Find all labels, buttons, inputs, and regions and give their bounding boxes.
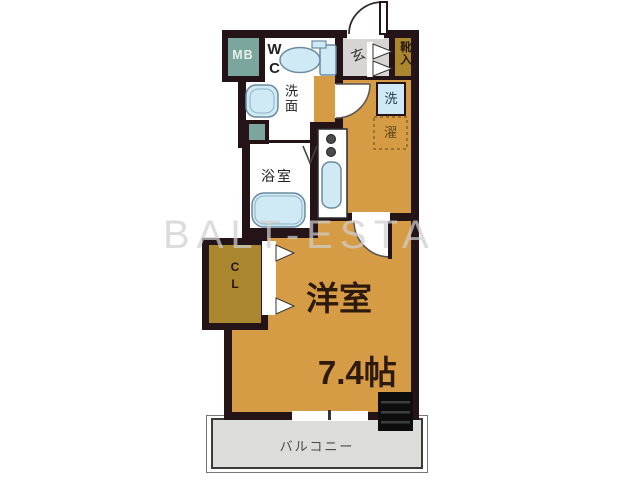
wall-shoe-divider [389,32,395,80]
toilet-bowl [280,48,320,73]
toilet-label: WC [266,41,283,79]
wall-corridor-right-lower [335,118,343,129]
toilet-tank [320,45,336,75]
laundry-label-top: 洗 [377,88,405,107]
washbasin [246,85,278,117]
stove-burner-1 [327,135,336,144]
balcony-window-tick [328,410,331,420]
wall-left-upper [238,76,246,148]
main-room-size: 7.4帖 [318,354,397,391]
wall-left-lower [224,322,232,420]
laundry-label-bottom: 濯 [374,122,407,141]
stove-burner-2 [327,148,336,157]
kitchen-sink [322,162,341,208]
wall-entrance-bottom [339,76,415,80]
bathroom-label: 浴室 [247,166,307,186]
washstand-label: 洗面 [281,84,300,114]
pipe-space [249,124,265,140]
meter-box-label: MB [227,48,259,62]
shoe-door-strip [367,42,373,77]
shaft-line-2 [381,411,410,414]
toilet-handle [312,41,326,48]
shaft-line-3 [381,421,410,424]
closet-label: CL [228,260,242,294]
wall-bottom-left [224,412,292,420]
shaft-line-1 [381,401,410,404]
shoe-cabinet-label: 靴入 [397,41,413,66]
entrance-door-leaf [380,2,387,34]
floor-plan: MB WC 洗面 浴室 玄 靴入 洗 濯 CL 洋室 7.4帖 バルコニー BA… [0,0,640,480]
balcony-label: バルコニー [212,436,422,455]
watermark: BALT-ESTA [163,213,436,258]
main-room-label: 洋室 7.4帖 [256,280,422,391]
main-room-name: 洋室 [306,280,372,317]
